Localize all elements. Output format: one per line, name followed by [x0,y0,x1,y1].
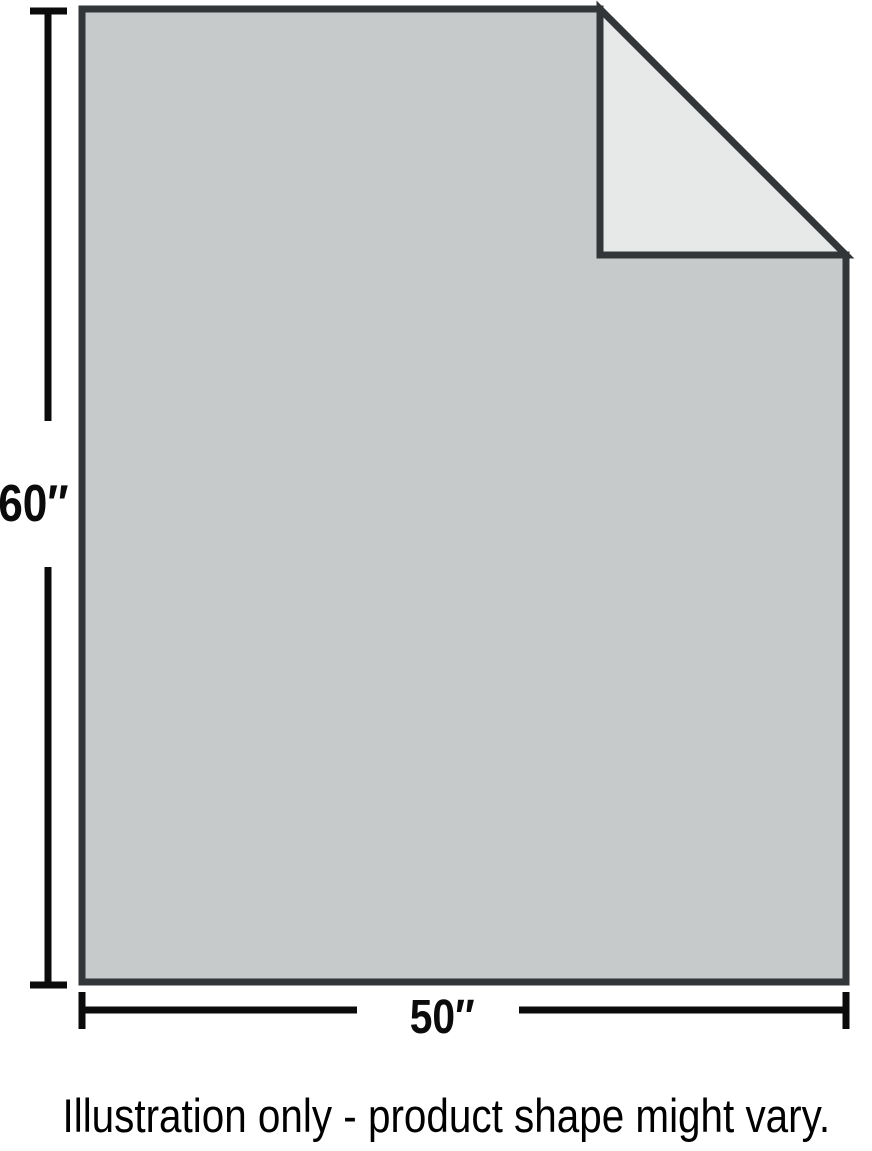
height-dimension-label: 60″ [0,478,78,530]
product-dimension-illustration: 60″ 50″ Illustration only - product shap… [0,0,872,1151]
height-dimension-value: 60″ [0,478,68,530]
caption-text: Illustration only - product shape might … [62,1090,830,1142]
width-dimension-value: 50″ [410,994,475,1042]
illustration-shapes [0,0,872,1151]
caption: Illustration only - product shape might … [0,1090,872,1142]
width-dimension-label: 50″ [372,994,512,1042]
folded-corner [600,9,846,255]
